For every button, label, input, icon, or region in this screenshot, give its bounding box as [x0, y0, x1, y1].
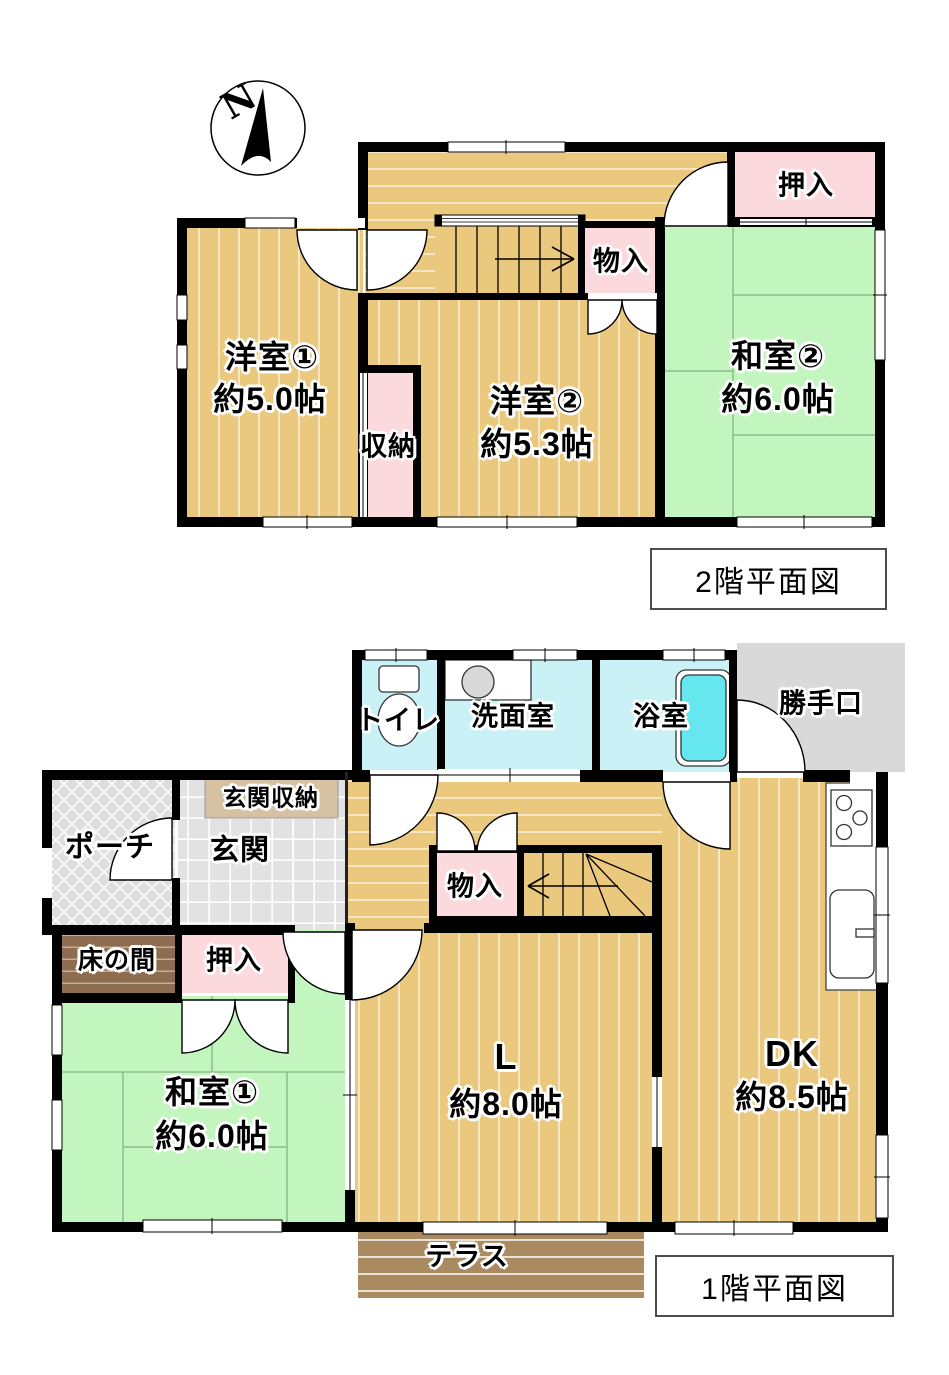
- label-washitsu2-name: 和室②: [731, 340, 825, 372]
- sink-basin-icon: [462, 666, 494, 698]
- label-washitsu1-name: 和室①: [165, 1076, 259, 1108]
- floorplan-page: N: [0, 0, 949, 1375]
- label-yoshitsu1-name: 洋室①: [225, 341, 319, 373]
- floor1-title: 1階平面図: [701, 1264, 848, 1308]
- label-toilet: トイレ: [356, 708, 440, 735]
- label-bathroom: 浴室: [633, 704, 689, 731]
- label-living-size: 約8.0帖: [449, 1088, 563, 1120]
- label-oshiire-2f: 押入: [778, 173, 834, 200]
- stairs-1f-floor: [524, 853, 662, 916]
- label-dk-name: DK: [765, 1036, 819, 1072]
- label-monoire-1f: 物入: [447, 874, 503, 901]
- label-oshiire-1f: 押入: [206, 948, 262, 975]
- label-tokonoma: 床の間: [78, 949, 156, 974]
- label-porch: ポーチ: [65, 834, 155, 863]
- label-washitsu2-size: 約6.0帖: [721, 383, 835, 415]
- label-shuno-2f: 収納: [360, 434, 416, 461]
- label-backdoor: 勝手口: [779, 691, 863, 718]
- label-entrance-storage: 玄関収納: [223, 787, 319, 810]
- label-yoshitsu2-name: 洋室②: [490, 385, 584, 417]
- label-dk-size: 約8.5帖: [735, 1081, 849, 1113]
- label-living-name: L: [495, 1039, 518, 1075]
- label-washroom: 洗面室: [471, 704, 555, 731]
- floor2-rooms: [177, 142, 877, 523]
- label-washitsu1-size: 約6.0帖: [155, 1120, 269, 1152]
- label-yoshitsu1-size: 約5.0帖: [213, 383, 327, 415]
- label-terrace: テラス: [425, 1244, 508, 1271]
- label-entrance: 玄関: [210, 837, 270, 866]
- compass: N: [211, 75, 305, 175]
- floor2-title-box: 2階平面図: [650, 548, 887, 610]
- toilet-tank-icon: [379, 666, 419, 692]
- faucet-icon: [856, 929, 874, 937]
- floor2-title: 2階平面図: [695, 557, 842, 601]
- label-yoshitsu2-size: 約5.3帖: [480, 428, 594, 460]
- label-monoire-2f: 物入: [593, 249, 649, 276]
- floorplan-drawing: N: [0, 0, 949, 1375]
- floor1-title-box: 1階平面図: [655, 1255, 894, 1317]
